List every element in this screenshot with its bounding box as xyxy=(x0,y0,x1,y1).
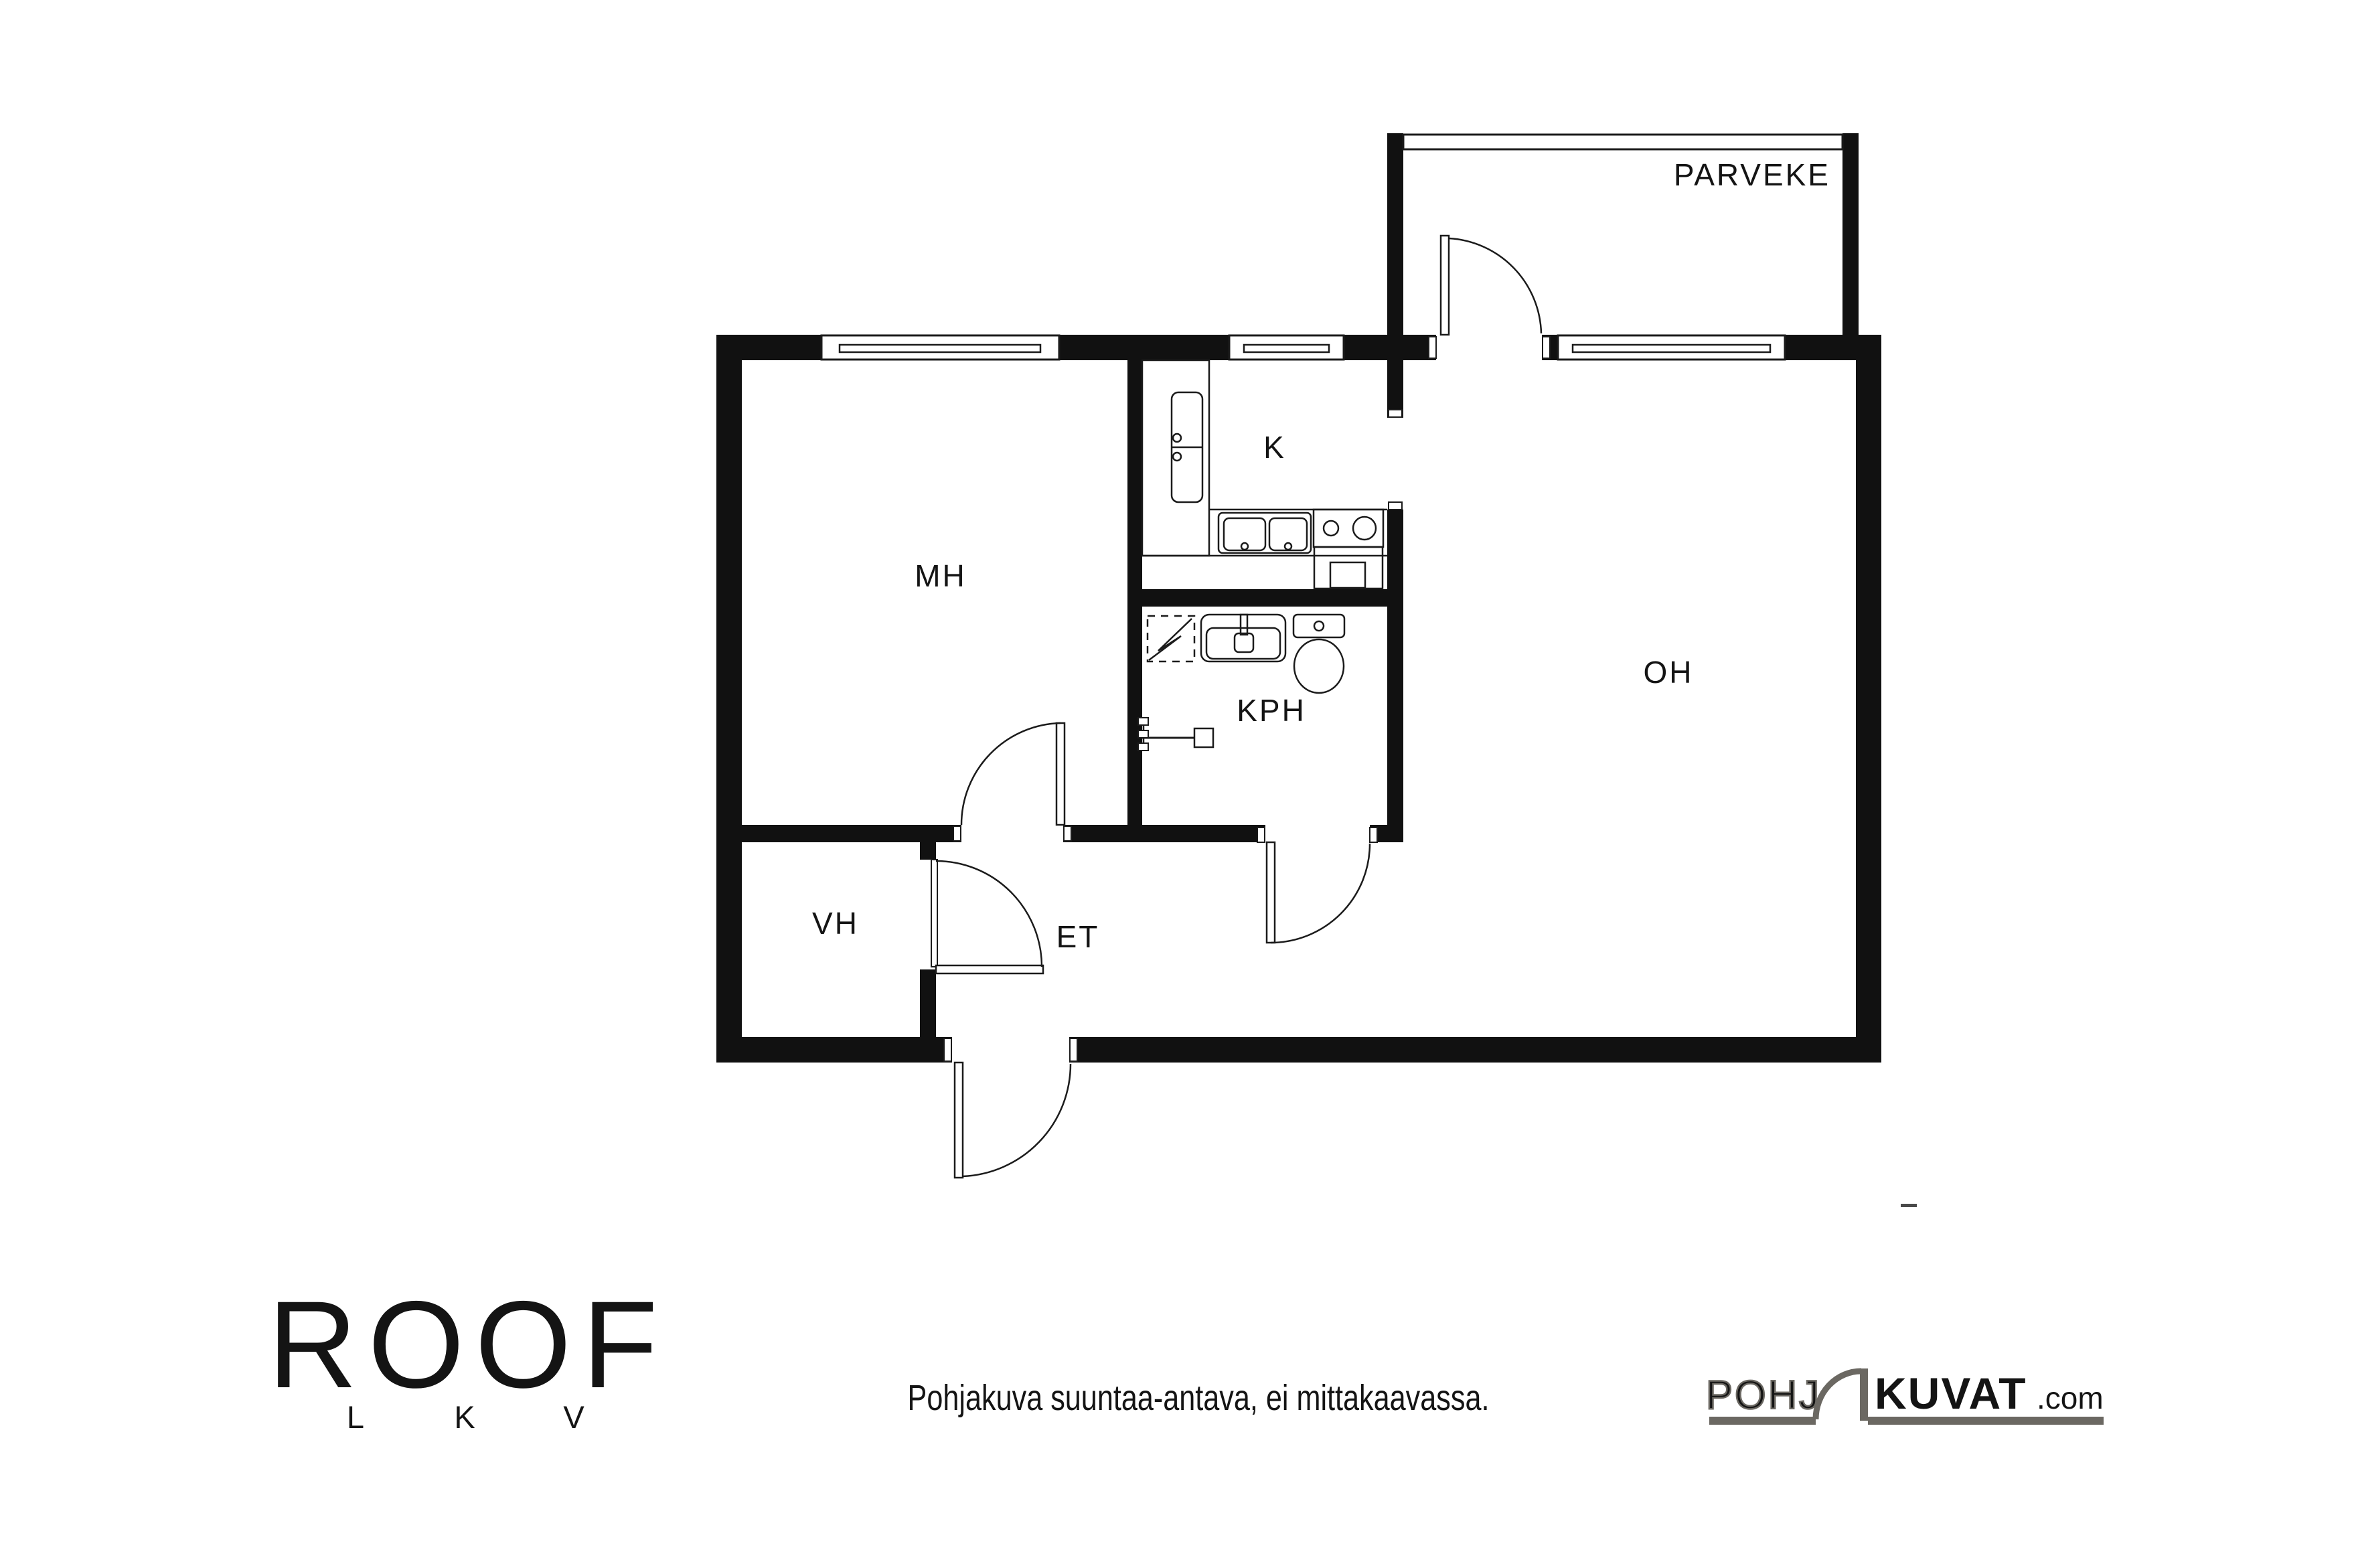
roof-logo-letter-k: K xyxy=(454,1399,475,1435)
disclaimer-text: Pohjakuva suuntaa-antava, ei mittakaavas… xyxy=(908,1379,1490,1419)
front-door xyxy=(944,1038,1077,1178)
door-swing-arc xyxy=(936,861,1042,967)
washer-valve-icon xyxy=(1138,718,1213,751)
roof-logo-word: ROOF xyxy=(268,1276,668,1414)
balcony-door xyxy=(1429,236,1550,358)
bathroom-door xyxy=(1257,828,1377,943)
room-label-parveke: PARVEKE xyxy=(1674,157,1830,192)
room-label-et: ET xyxy=(1056,919,1100,954)
footer: ROOF L K V Pohjakuva suuntaa-antava, ei … xyxy=(268,1276,2104,1435)
walls xyxy=(716,133,1881,1063)
roof-logo-letter-l: L xyxy=(347,1399,364,1435)
sink-icon xyxy=(1201,615,1285,661)
stove-icon xyxy=(1314,509,1383,589)
room-label-vh: VH xyxy=(812,906,859,941)
pohjakuvat-solid-text: KUVAT xyxy=(1875,1368,2027,1418)
kitchen-fixtures xyxy=(1142,360,1387,589)
wall-top xyxy=(1059,335,1229,360)
shower-icon xyxy=(1148,616,1194,661)
fridge-icon xyxy=(1172,392,1202,502)
tall-cabinet-icon xyxy=(1142,360,1209,556)
pohjakuvat-logo: POHJ KUVAT .com xyxy=(1706,1368,2104,1425)
roof-logo-letter-v: V xyxy=(563,1399,584,1435)
wall-closet-hall xyxy=(920,825,936,860)
wall-kitchen-bathroom xyxy=(1127,589,1403,607)
room-label-kph: KPH xyxy=(1237,693,1306,728)
wall-bottom xyxy=(716,1037,952,1063)
pohjakuvat-outline-text: POHJ xyxy=(1706,1373,1821,1417)
wall-right xyxy=(1856,335,1881,1063)
window-kitchen xyxy=(1229,335,1344,360)
closet-door xyxy=(931,860,1043,973)
wall-bottom xyxy=(1069,1037,1881,1063)
bedroom-door xyxy=(953,723,1071,841)
door-swing-arc xyxy=(1449,238,1541,333)
room-label-mh: MH xyxy=(915,558,967,593)
balcony-railing xyxy=(1403,135,1842,149)
door-swing-arc xyxy=(961,723,1061,825)
door-swing-arc xyxy=(1271,844,1370,943)
window-bedroom xyxy=(821,335,1059,360)
pohjakuvat-suffix-text: .com xyxy=(2037,1381,2104,1415)
room-label-oh: OH xyxy=(1644,655,1694,690)
stray-dash-mark xyxy=(1901,1204,1917,1207)
window-livingroom xyxy=(1558,335,1785,360)
oven-icon xyxy=(1314,547,1383,589)
wall-closet-hall xyxy=(920,969,936,1063)
room-label-k: K xyxy=(1263,430,1286,465)
toilet-icon xyxy=(1293,615,1344,693)
bathroom-fixtures xyxy=(1138,615,1344,751)
door-arc-icon xyxy=(1816,1368,1868,1421)
wall-kitchen-living xyxy=(1387,509,1403,842)
door-swing-arc xyxy=(963,1064,1071,1176)
wall-bathroom-bottom xyxy=(1063,825,1265,842)
double-sink-icon xyxy=(1219,513,1311,553)
wall-balcony-right xyxy=(1842,133,1859,335)
wall-left xyxy=(716,335,742,1063)
baseline-bar-right xyxy=(1868,1417,2104,1425)
roof-lkv-logo: ROOF L K V xyxy=(268,1276,668,1435)
wall-balcony-left xyxy=(1387,133,1403,418)
baseline-bar-left xyxy=(1709,1417,1816,1425)
kitchen-opening xyxy=(1389,410,1402,509)
wall-top xyxy=(716,335,821,360)
floor-plan: PARVEKE MH K OH KPH VH ET xyxy=(716,133,1917,1207)
